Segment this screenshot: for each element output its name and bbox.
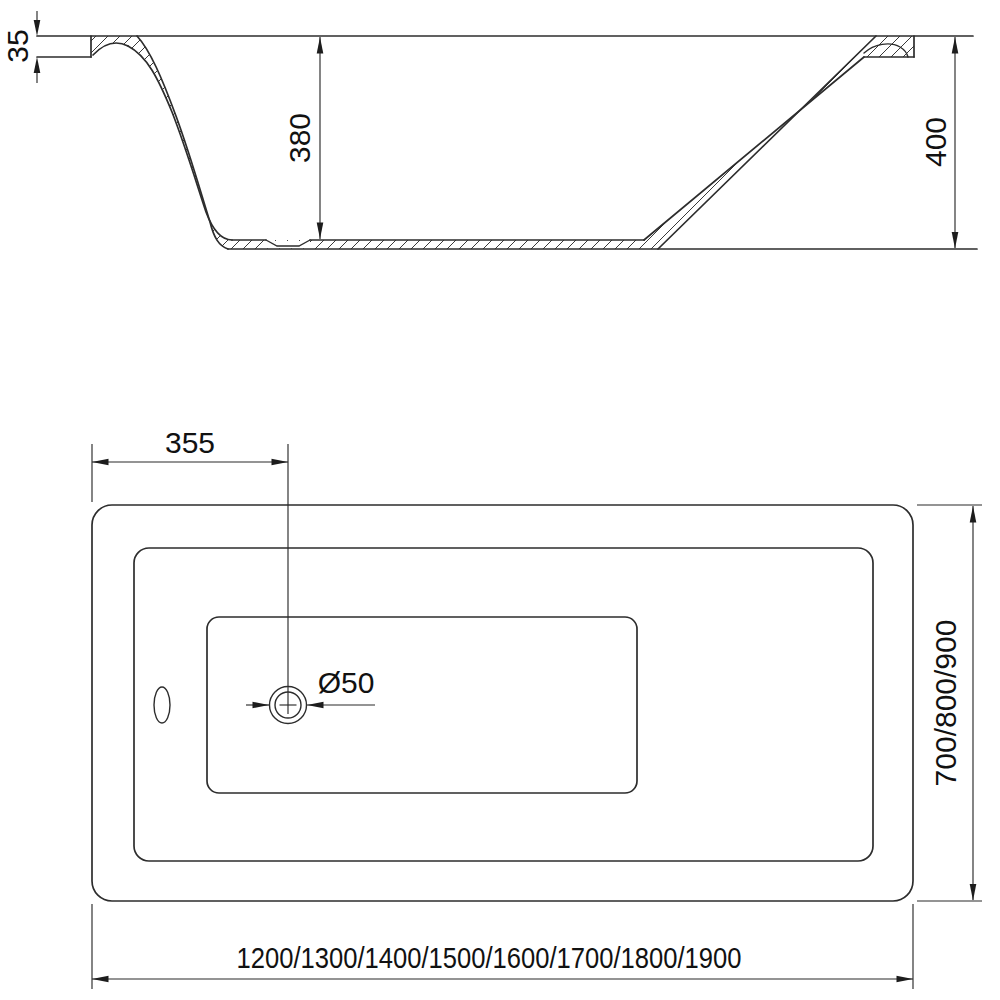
dim-d50-arrow-left [307,702,324,709]
dim-length-options: 1200/1300/1400/1500/1600/1700/1800/1900 [92,904,913,989]
dim-380-arrow-down [317,223,324,240]
dim-400-arrow-up [952,37,959,54]
dim-width-options: 700/800/900 [917,505,982,901]
tub-shell-hatch [91,36,914,249]
dim-35-arrow-up [34,57,41,73]
dim-d50-arrow-right [253,702,270,709]
dim-380-arrow-up [317,37,324,54]
dim-355: 355 [92,426,288,502]
dim-length-arrow-right [897,976,914,983]
overflow-hole [154,687,170,723]
dim-355-arrow-left [92,459,109,466]
dim-drain-diameter: Ø50 [246,666,375,708]
dim-width-arrow-up [970,506,977,523]
side-section-view: 35 380 400 [1,11,977,249]
left-wall-inner-edge [128,46,232,240]
dim-length-label: 1200/1300/1400/1500/1600/1700/1800/1900 [237,942,742,974]
tub-floor-outline [207,617,637,793]
plan-view: Ø50 355 700/800/900 [92,426,982,989]
dim-length-arrow-left [92,976,109,983]
backrest-outer-edge [658,36,876,249]
bathtub-technical-drawing: 35 380 400 [0,0,1000,1000]
dim-width-arrow-down [970,884,977,901]
dim-355-label: 355 [165,426,215,459]
dim-400-arrow-down [952,232,959,249]
dim-35: 35 [1,11,40,83]
drawing-canvas: 35 380 400 [0,0,1000,1000]
dim-width-label: 700/800/900 [929,620,962,787]
dim-380-label: 380 [283,113,316,163]
dim-d50-label: Ø50 [318,666,375,699]
backrest-inner-edge [644,57,864,240]
dim-35-arrow-down [34,20,41,36]
tub-outer-rim-outline [92,505,913,901]
drain [270,444,307,724]
dim-400: 400 [919,37,958,249]
tub-inner-rim-outline [134,548,873,861]
dim-355-arrow-right [272,459,289,466]
dim-380: 380 [283,37,323,239]
dim-35-label: 35 [1,29,34,62]
dim-400-label: 400 [919,117,952,167]
